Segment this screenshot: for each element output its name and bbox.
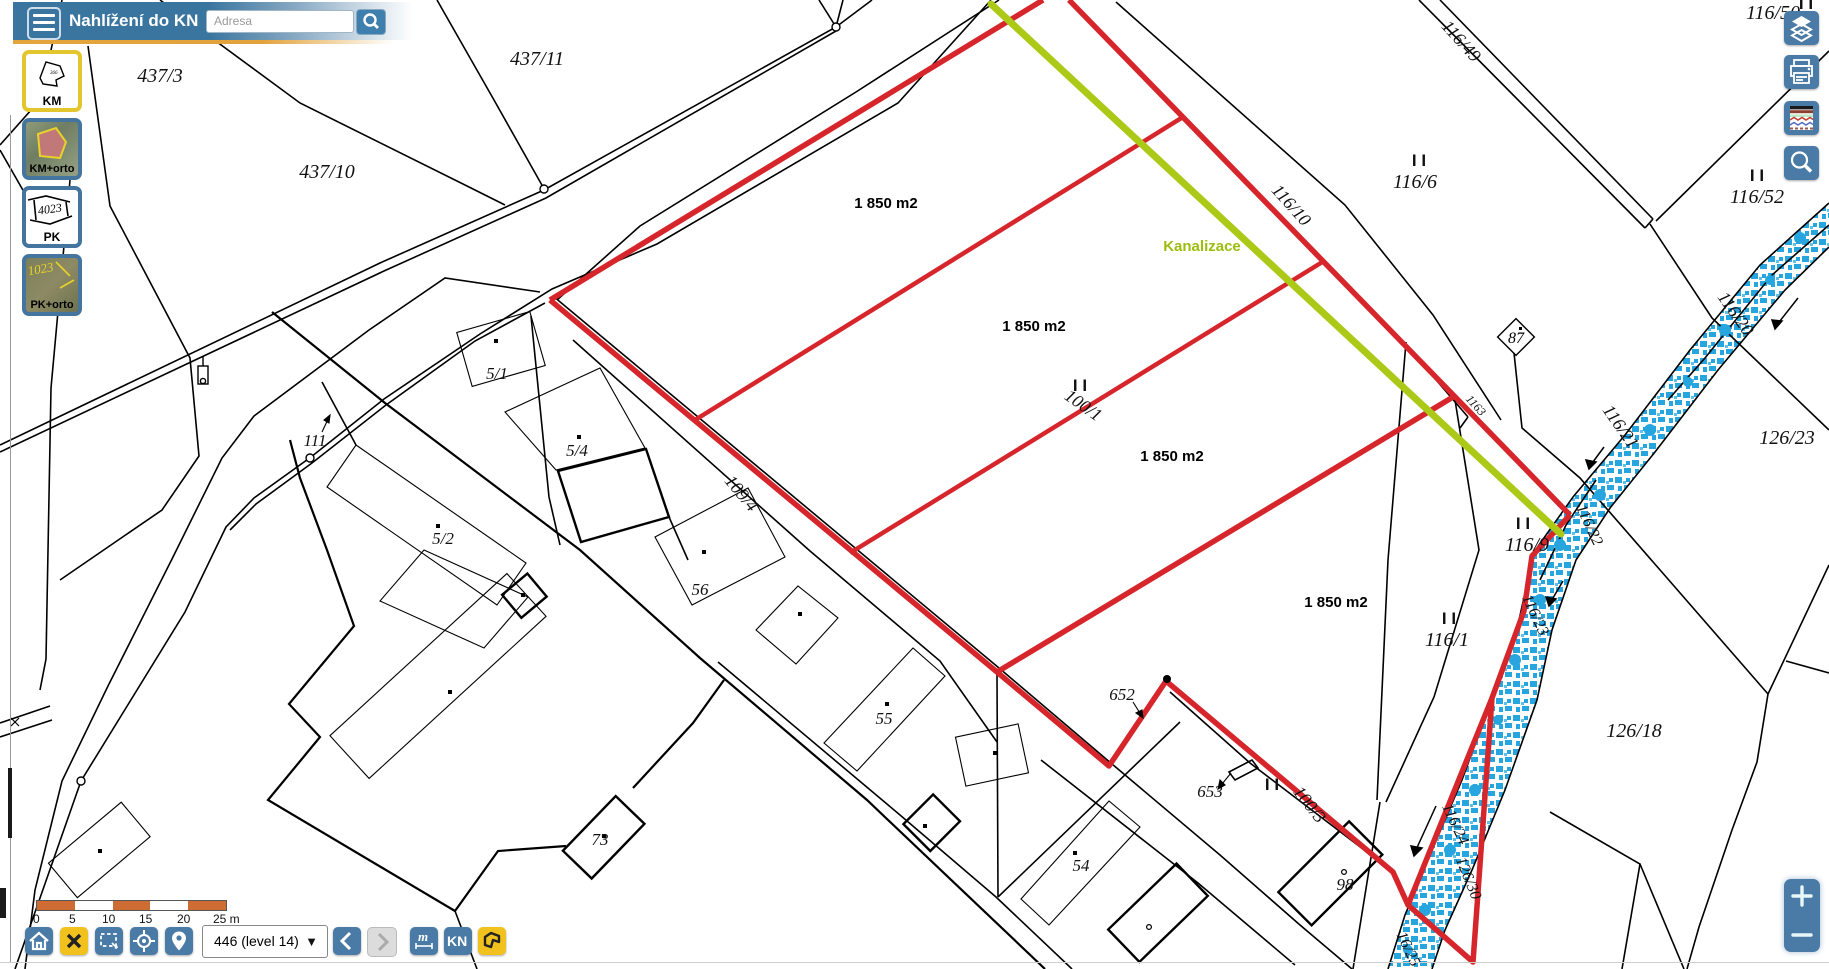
svg-text:I I: I I xyxy=(1412,151,1426,170)
svg-text:126/23: 126/23 xyxy=(1759,427,1815,449)
svg-text:98: 98 xyxy=(1337,875,1355,894)
svg-text:437/11: 437/11 xyxy=(510,48,564,70)
svg-text:1 850 m2: 1 850 m2 xyxy=(1002,318,1065,335)
svg-text:I I: I I xyxy=(1073,376,1087,395)
svg-text:55: 55 xyxy=(876,709,893,728)
svg-text:87: 87 xyxy=(1508,330,1525,347)
svg-text:652: 652 xyxy=(1109,685,1135,704)
svg-text:I I: I I xyxy=(1265,775,1279,794)
svg-text:116/49: 116/49 xyxy=(1438,16,1485,66)
svg-text:437/10: 437/10 xyxy=(299,161,355,183)
svg-text:56: 56 xyxy=(692,580,710,599)
svg-text:1 850 m2: 1 850 m2 xyxy=(1304,594,1367,611)
svg-text:I I: I I xyxy=(1516,514,1530,533)
svg-text:I I: I I xyxy=(1442,609,1456,628)
svg-text:366: 366 xyxy=(50,71,58,76)
svg-text:116/52: 116/52 xyxy=(1730,186,1784,208)
svg-text:54: 54 xyxy=(1073,856,1091,875)
svg-text:126/18: 126/18 xyxy=(1606,720,1662,742)
svg-text:5/2: 5/2 xyxy=(432,529,454,548)
svg-text:5/4: 5/4 xyxy=(566,441,588,460)
svg-text:1 850 m2: 1 850 m2 xyxy=(854,195,917,212)
svg-text:4023: 4023 xyxy=(37,200,63,217)
svg-text:109/4: 109/4 xyxy=(721,471,763,515)
svg-text:5/1: 5/1 xyxy=(486,364,508,383)
svg-text:116/6: 116/6 xyxy=(1393,171,1437,193)
svg-text:111: 111 xyxy=(304,431,327,450)
svg-text:116/10: 116/10 xyxy=(1268,180,1315,230)
svg-text:I I: I I xyxy=(1750,166,1764,185)
svg-text:116/9: 116/9 xyxy=(1505,534,1549,556)
svg-text:1 850 m2: 1 850 m2 xyxy=(1140,448,1203,465)
svg-text:1023: 1023 xyxy=(26,259,55,278)
svg-text:116/1: 116/1 xyxy=(1425,629,1469,651)
svg-text:m: m xyxy=(418,929,428,944)
svg-text:Kanalizace: Kanalizace xyxy=(1163,238,1241,255)
svg-text:KN: KN xyxy=(447,933,467,949)
svg-text:437/3: 437/3 xyxy=(137,65,183,87)
svg-text:73: 73 xyxy=(592,830,609,849)
